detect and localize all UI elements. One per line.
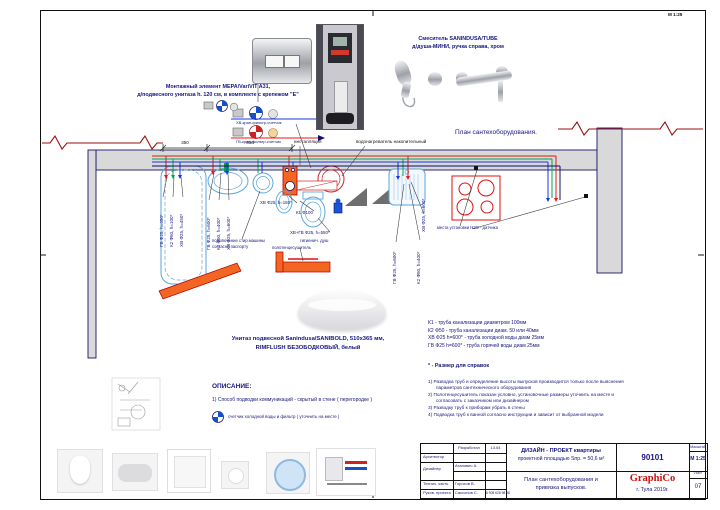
door-triangles	[345, 187, 392, 206]
title-block: Разработал 13.04 Архитектор Дизайнер Ата…	[420, 443, 708, 499]
legend-ref-note: * - Размер для справок	[428, 363, 489, 369]
tb-name-lead: Саксонов С.	[455, 491, 478, 496]
thumbnail-diagram	[316, 448, 376, 496]
tb-name-designer: Атанович А.	[455, 464, 477, 469]
legend-note2: 2) Полотенцесушитель показан условно, ус…	[428, 392, 624, 404]
legend-note1: 1) Разводка труб и определение высоты вы…	[428, 379, 624, 391]
flush-button-small	[284, 55, 300, 68]
toilet-valve	[334, 199, 342, 214]
plan-title: План сантехоборудования.	[455, 129, 537, 136]
legend-line3: ХВ Ф25 h=600* - труба холодной воды диам…	[428, 336, 544, 342]
tb-role-designer: Дизайнер	[423, 467, 441, 472]
mixer-caption-line2: д/душа-МИНИ, ручка справа, хром	[388, 44, 528, 50]
tb-project-line1: ДИЗАЙН - ПРОЕКТ квартиры	[506, 448, 616, 454]
thumbnail-fixture-2	[112, 453, 158, 491]
tb-scale-label: Масштаб	[689, 445, 707, 449]
xv150-label: ХВ Ф25, h=150*	[260, 200, 292, 205]
description-item1: 1) Способ подводки коммуникаций - скрыты…	[212, 398, 372, 404]
tb-role-tech: Технич. часть	[423, 482, 448, 487]
thumbnail-fixture-4	[221, 461, 249, 489]
legend-note3: 3) Разводку труб к приборам убрать в сте…	[428, 405, 624, 411]
tb-city-year: г. Тула 2019г.	[616, 487, 689, 493]
installation-label: инсталляция	[294, 139, 322, 144]
toilet-caption-line1: Унитаз подвесной Sanindusa/SANIBOLD, 510…	[222, 336, 394, 343]
flush-button-large	[265, 55, 284, 68]
tb-sheetname-line1: План сантехоборудования и	[506, 477, 616, 483]
flush-plate-image	[252, 38, 312, 84]
washer-note-line2: согласно паспорту	[212, 245, 248, 250]
dim-350: 350	[167, 140, 203, 145]
cold-meter-icon	[213, 412, 224, 423]
tb-list-number: 07	[689, 484, 707, 491]
sensor-label: места установки Н2О - датчика	[437, 226, 498, 231]
tub-xv-label: ХВ Ф25, h=450*	[179, 214, 184, 247]
sink-gv-label: ГВ Ф25, h=600*	[392, 251, 397, 284]
sink-k2-label: К2 Ф50, h=400*	[416, 252, 421, 284]
installation-sketch	[112, 378, 160, 430]
meter-note: счетчик холодной воды и фильтр ( уточнит…	[228, 414, 339, 419]
k1-label: К1 Ф100	[296, 210, 313, 215]
tb-list-label: Лист	[689, 471, 707, 475]
corner-scale-mark: М 1:25	[668, 12, 682, 17]
basin-gv-label: ГВ Ф25, h=600*	[206, 217, 211, 250]
drawing-sheet: М 1:25 Монтажный элемент MEPA/VariVIT A3…	[0, 0, 720, 510]
dim-650: 650	[212, 140, 288, 145]
cooktop	[452, 176, 500, 220]
meter-icon-pair	[204, 101, 238, 112]
sprayer-wall-holder	[428, 72, 442, 86]
tb-developed: Разработал	[453, 446, 485, 451]
tb-phone: 8 905 628 98 98	[486, 492, 510, 496]
kitchen-sink	[389, 169, 425, 205]
tb-scale-value: М 1:25	[689, 457, 707, 463]
thumbnail-fixture-3	[167, 449, 211, 493]
toilet-photo	[298, 290, 386, 330]
tb-name-tech: Горохов В.	[455, 482, 475, 487]
xvgv550-label: ХВ+ГВ Ф25, h=550*	[290, 230, 330, 235]
tub-k2-label: К2 Ф50, h=100*	[169, 215, 174, 247]
cold-assembly-label: ХВ-кран-фильтр-счетчик	[236, 121, 281, 126]
installation-frame-image	[316, 24, 364, 130]
washing-machine	[253, 173, 273, 193]
toilet-caption-line2: RIMFLUSH БЕЗОБОДКОВЫЙ, белый	[222, 345, 394, 352]
mount-element-caption-line2: д/подвесного унитаза h. 120 см, в компле…	[106, 92, 330, 98]
towel-label: полотенцесушитель	[272, 246, 311, 251]
legend-line2: К2 Ф50 - труба канализации диам. 50 или …	[428, 329, 539, 335]
legend-line1: К1 - труба канализации диаметром 100мм	[428, 321, 526, 327]
tb-sheetname-line2: привязка выпусков.	[506, 485, 616, 491]
hygienic-label: гигиенич. душ	[300, 238, 328, 243]
mount-element-caption-line1: Монтажный элемент MEPA/VariVIT A31,	[118, 84, 318, 90]
tb-brand-logo: GraphiCo	[616, 473, 689, 485]
cistern-display	[328, 33, 352, 63]
tb-project-code: 90101	[616, 453, 689, 462]
tb-project-line2: проектной площадью Sпр. = 50,6 м²	[506, 457, 616, 463]
tub-gv-label: ГВ Ф25, h=450*	[159, 214, 164, 247]
tb-role-architect: Архитектор	[423, 455, 444, 460]
thumbnail-fixture-5	[266, 452, 310, 494]
legend-line4: ГВ Ф25 h=600* - труба горячей воды диам …	[428, 344, 540, 350]
mixer-handle	[498, 80, 503, 102]
description-title: ОПИСАНИЕ:	[212, 383, 252, 390]
mirror-cabinet	[297, 181, 337, 190]
legend-note4: 4) Подводка труб к ванной согласно инстр…	[428, 412, 624, 418]
tb-date: 13.04	[485, 446, 506, 451]
mixer-caption-line1: Смеситель SANINDUSA/TUBE	[388, 36, 528, 42]
thumbnail-fixture-1	[57, 449, 103, 493]
sink-xv-label: ХВ Ф25, h=600*	[421, 199, 426, 232]
tb-role-lead: Руков. проекта	[423, 491, 451, 496]
water-heater-label: водонагреватель накопительный	[356, 139, 426, 144]
